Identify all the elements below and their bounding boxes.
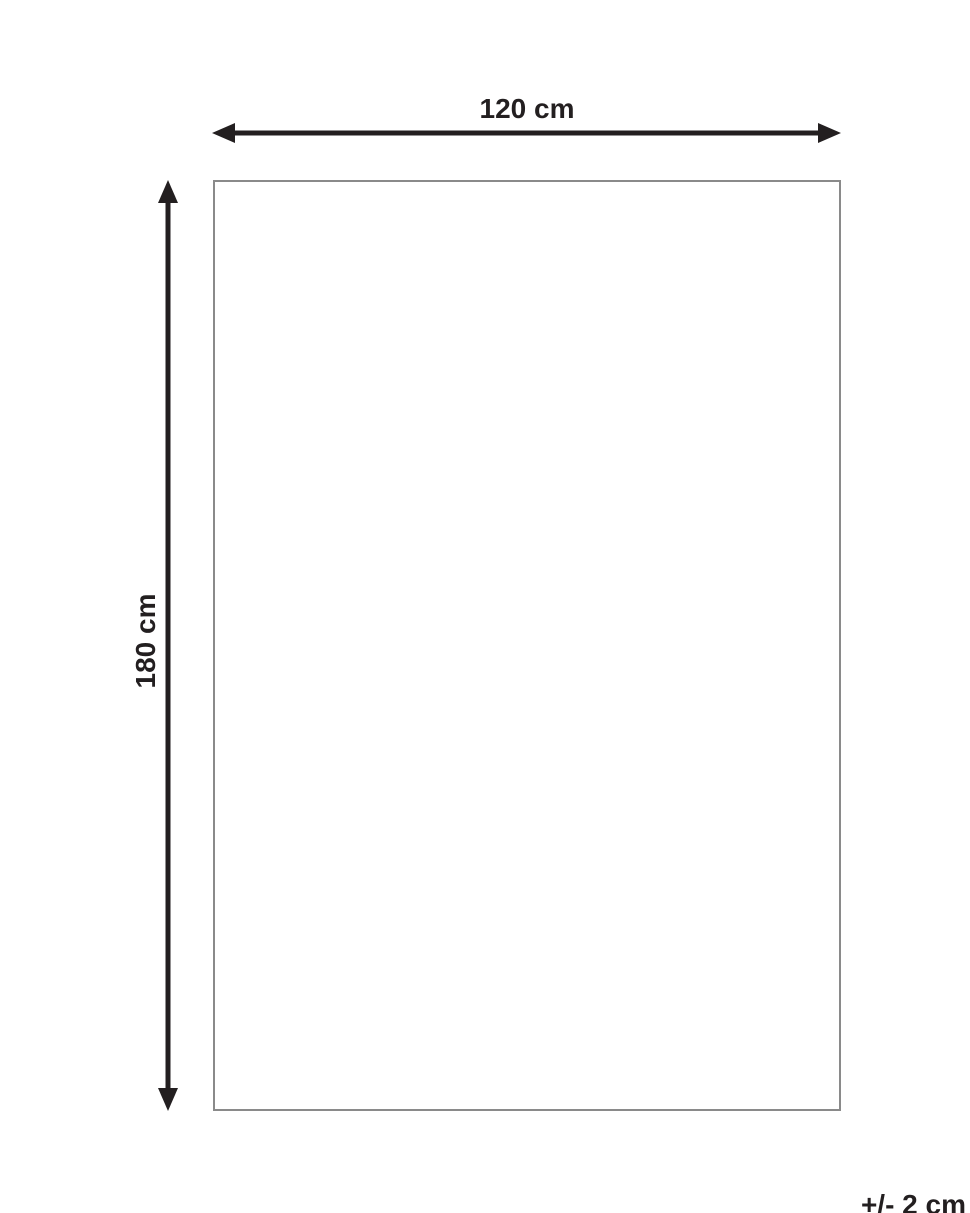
tolerance-label: +/- 2 cm bbox=[861, 1191, 966, 1213]
dimension-diagram: 120 cm 180 cm +/- 2 cm bbox=[0, 0, 970, 1213]
width-arrow-right-head-icon bbox=[818, 123, 841, 143]
width-arrow-left-head-icon bbox=[212, 123, 235, 143]
height-dimension-label: 180 cm bbox=[132, 594, 160, 689]
width-dimension-label: 120 cm bbox=[213, 95, 841, 123]
height-arrow-top-head-icon bbox=[158, 180, 178, 203]
height-arrow-bottom-head-icon bbox=[158, 1088, 178, 1111]
product-outline-rectangle bbox=[213, 180, 841, 1111]
